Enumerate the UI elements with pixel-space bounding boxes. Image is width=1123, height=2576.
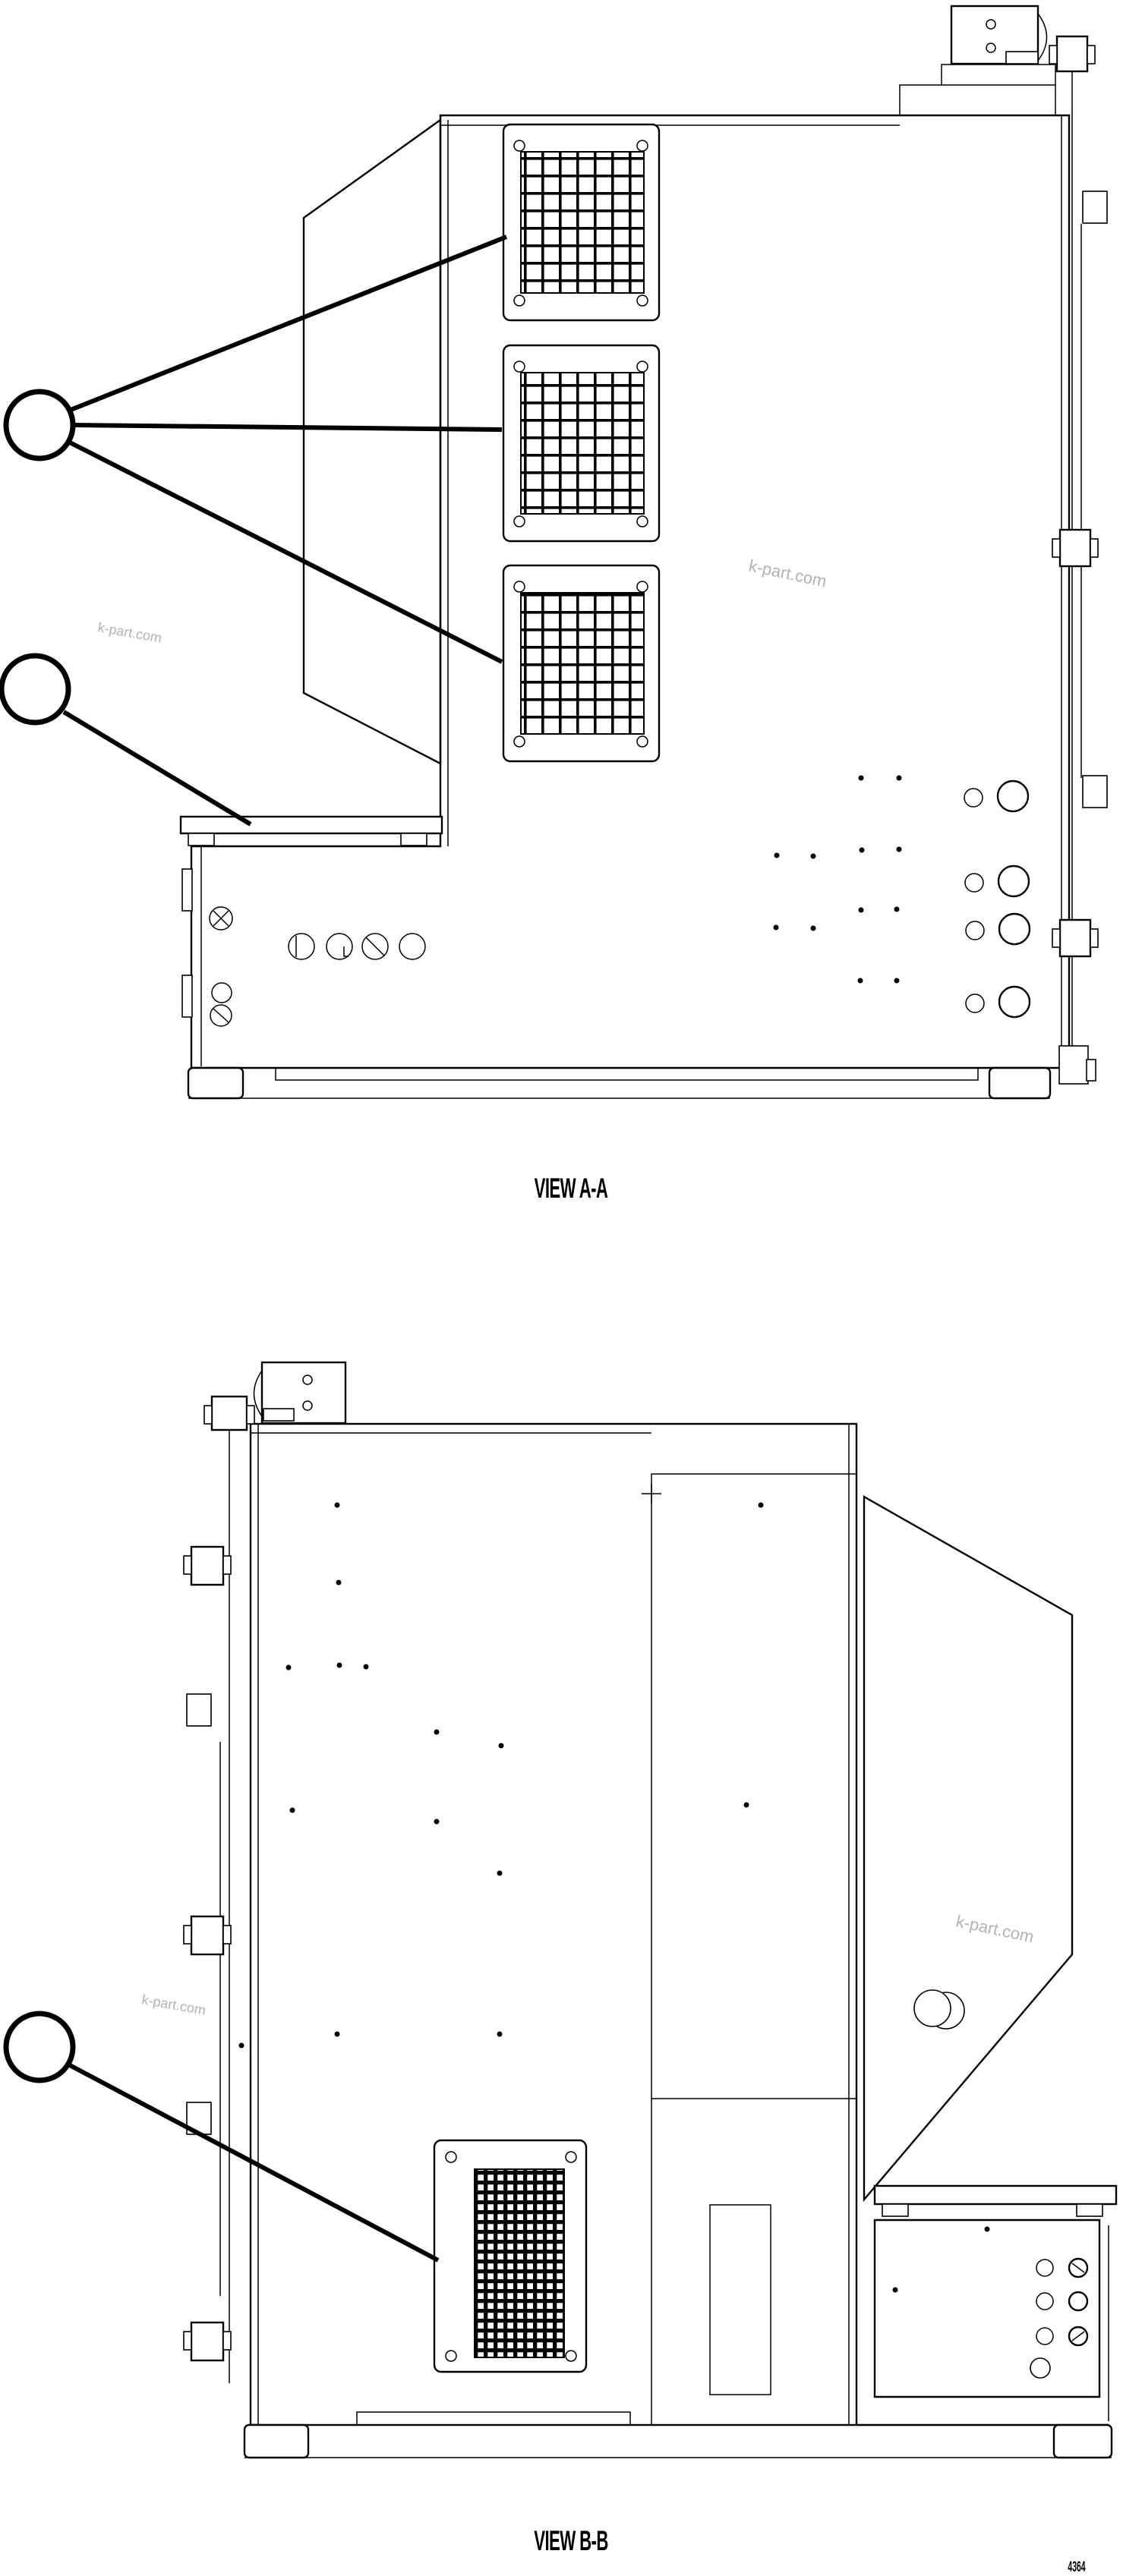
parts-diagram-page: k-part.com k-part.com VIEW A-A [0, 0, 1123, 2576]
mounting-shelf [875, 2186, 1116, 2204]
foot [188, 1068, 243, 1098]
roof-platform [900, 65, 1055, 115]
hinge-foot-bracket [1059, 1046, 1088, 1084]
skirt-recess [357, 2412, 630, 2425]
hinge-bolt [204, 1406, 212, 1424]
side-tab [182, 975, 192, 1017]
hinge-bolt [1049, 46, 1057, 64]
side-tab [182, 869, 192, 911]
hinge-bolt [1087, 46, 1095, 64]
hinge-bolt [1087, 1060, 1096, 1081]
hinge-bracket-top [212, 1397, 247, 1430]
watermark-text: k-part.com [96, 619, 162, 645]
door-panel [864, 1497, 1072, 2200]
rivet-dots [774, 776, 902, 984]
hinge-bolt [184, 1556, 191, 1574]
shelf-cap [401, 833, 427, 846]
compartment-edge [651, 1474, 856, 2425]
control-panel [875, 2220, 1099, 2397]
hinge-bolt [184, 1926, 191, 1944]
hinge-bracket-mid [1060, 530, 1090, 566]
side-tab [1083, 776, 1107, 808]
balloon-callout-a1[interactable] [6, 392, 73, 458]
hinge-bolt [1052, 539, 1060, 557]
vent-grille-3 [503, 565, 659, 761]
box-flap [254, 1371, 263, 1416]
balloon-callout-a2[interactable] [2, 656, 68, 723]
box-flap [1038, 14, 1047, 61]
panel-screws [210, 907, 232, 1026]
shelf-cap [882, 2204, 908, 2216]
hinge-bolt [223, 1556, 231, 1574]
hinge-bolt [1090, 929, 1098, 947]
vent-grille [434, 2140, 586, 2372]
mounting-shelf [181, 817, 442, 833]
hinge-bracket [191, 1916, 223, 1954]
foot [1054, 2425, 1112, 2458]
hinge-bolt [247, 1406, 254, 1424]
leader-line [64, 712, 251, 824]
view-b-drawing: k-part.com k-part.com VIEW B-B [6, 1362, 1116, 2556]
hinge-bracket-low [1060, 920, 1090, 956]
vent-grille-1 [503, 124, 659, 320]
hinge-bracket-top [1057, 36, 1087, 71]
porthole [914, 1990, 951, 2026]
foot [989, 1068, 1050, 1098]
panel-holes [1030, 2259, 1087, 2378]
box-notch [263, 1409, 294, 1421]
hinge-bolt [1090, 539, 1098, 557]
page-number: 4364 [1068, 2559, 1086, 2575]
mount-hole-pairs [964, 781, 1030, 1017]
balloon-callout-b1[interactable] [6, 2014, 73, 2080]
vent-grille-2 [503, 345, 659, 541]
hinge-bracket [191, 2322, 223, 2360]
shelf-cap [188, 833, 214, 846]
foot [244, 2425, 308, 2458]
leader-line [73, 425, 502, 430]
diagram: k-part.com k-part.com VIEW A-A [0, 0, 1123, 2576]
view-b-label: VIEW B-B [534, 2525, 608, 2556]
hinge-bolt [1052, 929, 1060, 947]
watermark-text: k-part.com [954, 1911, 1036, 1946]
knockout-holes [289, 934, 425, 959]
compartment-panel [710, 2205, 771, 2395]
shelf-cap [1077, 2204, 1102, 2216]
side-tab [1083, 191, 1107, 223]
rivet-dots [239, 1503, 990, 2293]
hinge-bolt [223, 2332, 231, 2350]
skirt-recess [276, 1068, 978, 1080]
hinge-bracket [191, 1547, 223, 1585]
view-a-label: VIEW A-A [535, 1173, 608, 1204]
watermark-text: k-part.com [140, 1992, 207, 2017]
view-a-drawing: k-part.com k-part.com VIEW A-A [2, 6, 1107, 1204]
hinge-bolt [223, 1926, 231, 1944]
cross-mark [642, 1484, 661, 1504]
watermark-text: k-part.com [747, 556, 828, 590]
leader-line [68, 2064, 438, 2260]
box-notch [1006, 52, 1038, 64]
side-tab [187, 1694, 211, 1726]
hinge-bolt [184, 2332, 191, 2350]
door-panel [304, 120, 440, 764]
